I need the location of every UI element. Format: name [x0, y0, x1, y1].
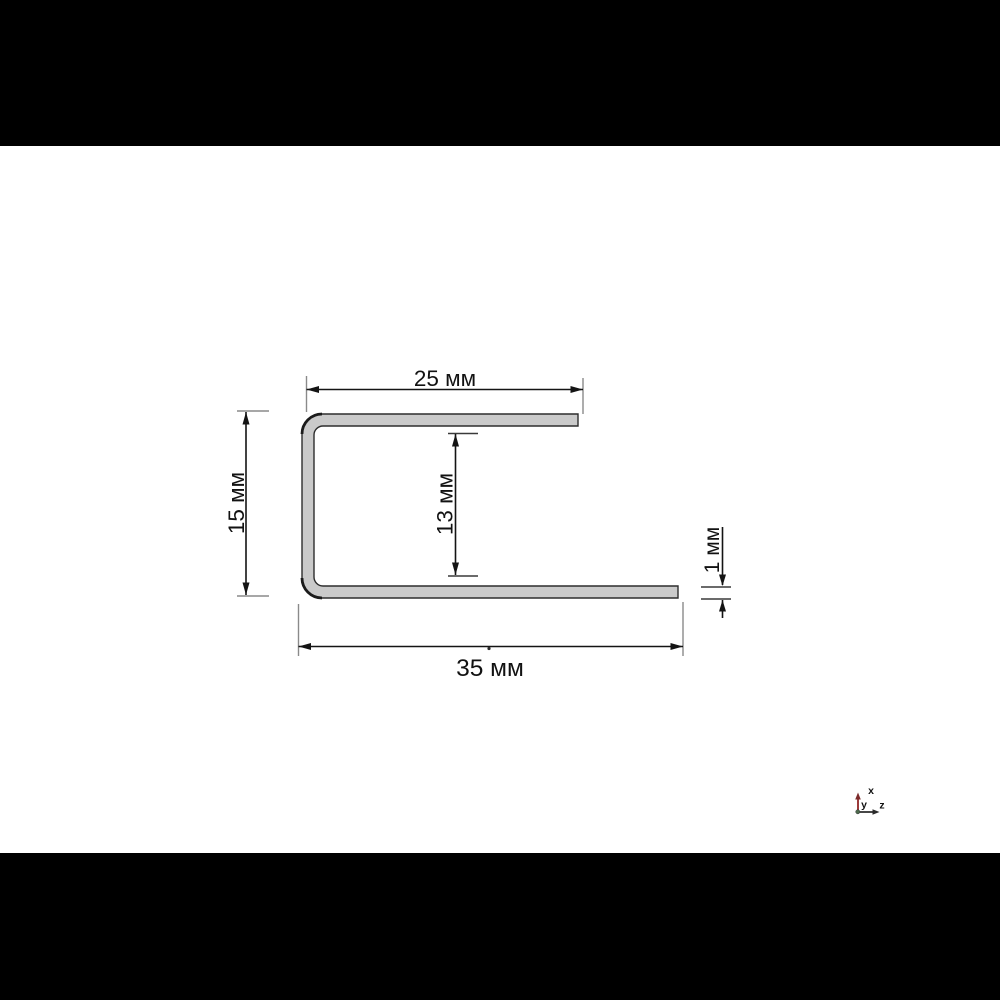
dimension-label-1mm: 1 мм: [701, 527, 724, 573]
arrowhead-down-icon: [719, 575, 726, 587]
dimension-label-35mm: 35 мм: [456, 655, 524, 682]
profile-shape-group: [302, 414, 678, 598]
profile-outline: [302, 414, 678, 598]
dimension-outer-height: 15 мм: [224, 411, 269, 596]
y-axis-origin-dot: [856, 810, 860, 814]
technical-drawing: 25 мм 15 мм 13 мм 1 мм: [0, 0, 1000, 1000]
axis-triad: x y z: [855, 785, 884, 815]
x-axis-label: x: [868, 785, 874, 797]
viewer-canvas: 25 мм 15 мм 13 мм 1 мм: [0, 0, 1000, 1000]
arrowhead-left-icon: [307, 386, 320, 393]
dimension-midpoint-dot: [487, 647, 490, 650]
x-axis-arrowhead-icon: [855, 793, 861, 800]
arrowhead-up-icon: [243, 412, 250, 425]
dimension-inner-height: 13 мм: [433, 434, 479, 577]
letterbox-bottom: [0, 853, 1000, 1000]
z-axis-label: z: [879, 800, 884, 812]
arrowhead-right-icon: [571, 386, 584, 393]
dimension-label-15mm: 15 мм: [224, 472, 249, 534]
dimension-top-flange-width: 25 мм: [307, 366, 584, 414]
arrowhead-left-icon: [299, 643, 312, 650]
dimension-bottom-flange-width: 35 мм: [299, 602, 684, 682]
arrowhead-down-icon: [243, 583, 250, 596]
letterbox-top: [0, 0, 1000, 146]
y-axis-label: y: [861, 799, 867, 811]
dimension-label-13mm: 13 мм: [433, 473, 458, 535]
dimension-material-thickness: 1 мм: [701, 527, 731, 618]
arrowhead-down-icon: [452, 563, 459, 576]
arrowhead-right-icon: [671, 643, 684, 650]
dimension-label-25mm: 25 мм: [414, 366, 476, 391]
arrowhead-up-icon: [452, 434, 459, 447]
